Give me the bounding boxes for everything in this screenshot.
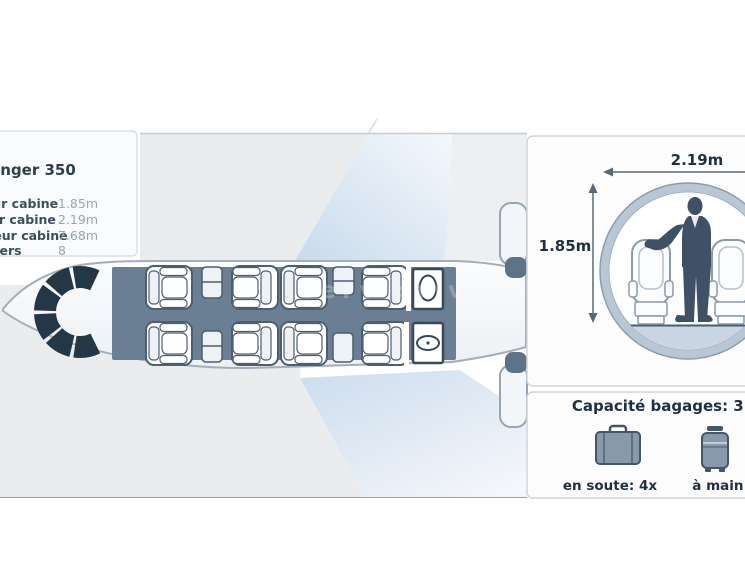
sink-drain-dot (426, 341, 429, 344)
carry-on-icon (702, 426, 728, 472)
aircraft-infographic-canvas: serv priv Challenger 350 Hauteur cabine … (0, 0, 745, 581)
aircraft-title: Challenger 350 (0, 161, 76, 179)
cabin-divider (404, 322, 409, 366)
hold-baggage-label: en soute: 4x (563, 478, 657, 494)
seat (281, 322, 327, 365)
seat (232, 322, 278, 365)
watermark-text: serv priv (301, 278, 469, 304)
baggage-title: Capacité bagages: 3.0m³ (572, 397, 745, 415)
table (333, 333, 353, 362)
seat (146, 266, 192, 309)
spec-value: 1.85m (58, 196, 98, 211)
spec-value: 2.19m (58, 212, 98, 227)
seat-cross (709, 240, 745, 324)
seat-row-bottom (146, 322, 408, 365)
infographic-challenger-350: serv priv Challenger 350 Hauteur cabine … (0, 0, 745, 581)
spec-label: Passagers (0, 243, 22, 258)
engine-nacelle-bottom (500, 365, 527, 427)
spec-label: Hauteur cabine (0, 196, 58, 211)
engine-tip-bottom (505, 352, 527, 373)
engine-tip-top (505, 257, 527, 278)
seat (362, 322, 408, 365)
seat (232, 266, 278, 309)
seat-cross (629, 240, 673, 324)
spec-value: 7.68m (58, 228, 98, 243)
seat (146, 322, 192, 365)
cabin-height-label: 1.85m (539, 237, 592, 255)
suitcase-icon (596, 426, 640, 464)
spec-panel: Challenger 350 Hauteur cabine 1.85m Larg… (0, 131, 137, 258)
baggage-panel: Capacité bagages: 3.0m³ en soute: 4x à m… (527, 392, 745, 498)
spec-value: 8 (58, 243, 66, 258)
cross-section-panel: 2.19m 1.85m (527, 136, 745, 386)
engine-nacelle-top (500, 203, 527, 265)
cabin-width-label: 2.19m (671, 151, 724, 169)
spec-label: Largeur cabine (0, 212, 56, 227)
hand-baggage-label: à main: 4x (692, 478, 745, 494)
